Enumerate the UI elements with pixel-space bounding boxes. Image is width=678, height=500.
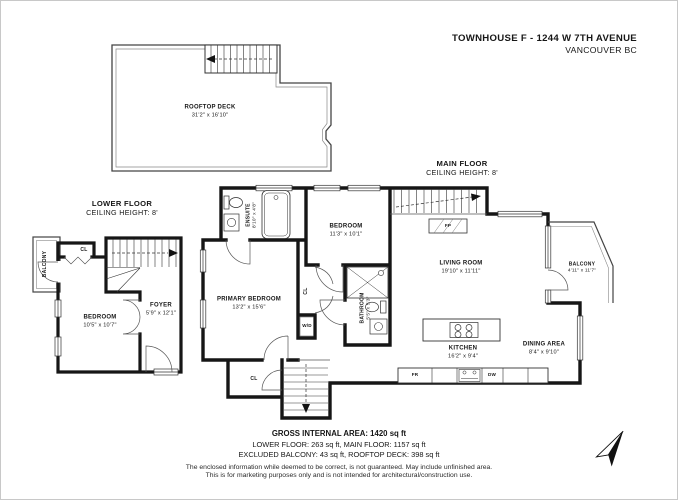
- fireplace-label: FP: [445, 223, 451, 229]
- bedroom-label: BEDROOM 11'3" x 10'1": [329, 223, 362, 238]
- main-floor-name: MAIN FLOOR: [426, 159, 498, 168]
- floorplan-page: TOWNHOUSE F - 1244 W 7TH AVENUE VANCOUVE…: [0, 0, 678, 500]
- plan-title-address: TOWNHOUSE F - 1244 W 7TH AVENUE: [452, 33, 637, 44]
- dining-area-label: DINING AREA 8'4" x 9'10": [523, 341, 565, 356]
- main-stairs-top-icon: [394, 190, 481, 213]
- dishwasher-label: DW: [488, 372, 496, 378]
- main-floor-header: MAIN FLOOR CEILING HEIGHT: 8': [426, 159, 498, 177]
- rooftop-stairs-icon: [205, 45, 277, 73]
- excluded-areas-line: EXCLUDED BALCONY: 43 sq ft, ROOFTOP DECK…: [0, 450, 678, 459]
- foyer-label: FOYER 5'9" x 12'1": [146, 302, 176, 317]
- main-floor-ceiling: CEILING HEIGHT: 8': [426, 168, 498, 177]
- lower-stairs-icon: [106, 239, 178, 292]
- lower-floor-header: LOWER FLOOR CEILING HEIGHT: 8': [86, 199, 158, 217]
- bottom-closet-label: CL: [250, 376, 257, 383]
- footer-area-summary: GROSS INTERNAL AREA: 1420 sq ft LOWER FL…: [0, 429, 678, 479]
- ensuite-label: ENSUITE 8'10" x 4'8": [246, 202, 259, 228]
- kitchen-island: [423, 319, 500, 341]
- disclaimer-line-2: This is for marketing purposes only and …: [0, 472, 678, 479]
- plan-title: TOWNHOUSE F - 1244 W 7TH AVENUE VANCOUVE…: [452, 33, 637, 55]
- plan-title-city: VANCOUVER BC: [452, 45, 637, 55]
- lower-balcony-label: BALCONY: [42, 251, 49, 277]
- main-balcony-label: BALCONY 4'11" x 11'7": [568, 262, 596, 275]
- gross-area-line: GROSS INTERNAL AREA: 1420 sq ft: [0, 429, 678, 438]
- lower-closet-label: CL: [80, 247, 87, 254]
- kitchen-counter: [398, 368, 548, 383]
- fridge-label: FR: [412, 372, 419, 378]
- living-room-label: LIVING ROOM 19'10" x 11'11": [439, 260, 482, 275]
- main-stairs-bottom-icon: [284, 364, 328, 413]
- bathroom-label: BATHROOM 5'5" x 5'3": [360, 292, 373, 323]
- kitchen-label: KITCHEN 16'2" x 9'4": [448, 345, 478, 360]
- floorplan-drawing: [0, 0, 678, 500]
- lower-floor-ceiling: CEILING HEIGHT: 8': [86, 208, 158, 217]
- floor-areas-line: LOWER FLOOR: 263 sq ft, MAIN FLOOR: 1157…: [0, 440, 678, 449]
- rooftop-deck-label: ROOFTOP DECK 31'2" x 16'10": [184, 104, 235, 119]
- primary-bedroom-label: PRIMARY BEDROOM 13'2" x 15'6": [217, 296, 281, 311]
- washer-dryer-label: W/D: [302, 323, 312, 329]
- lower-bedroom-label: BEDROOM 10'5" x 10'7": [83, 314, 116, 329]
- main-doors: [226, 240, 568, 390]
- lower-floor-name: LOWER FLOOR: [86, 199, 158, 208]
- disclaimer-line-1: The enclosed information while deemed to…: [0, 464, 678, 471]
- main-closet-label: CL: [303, 287, 310, 294]
